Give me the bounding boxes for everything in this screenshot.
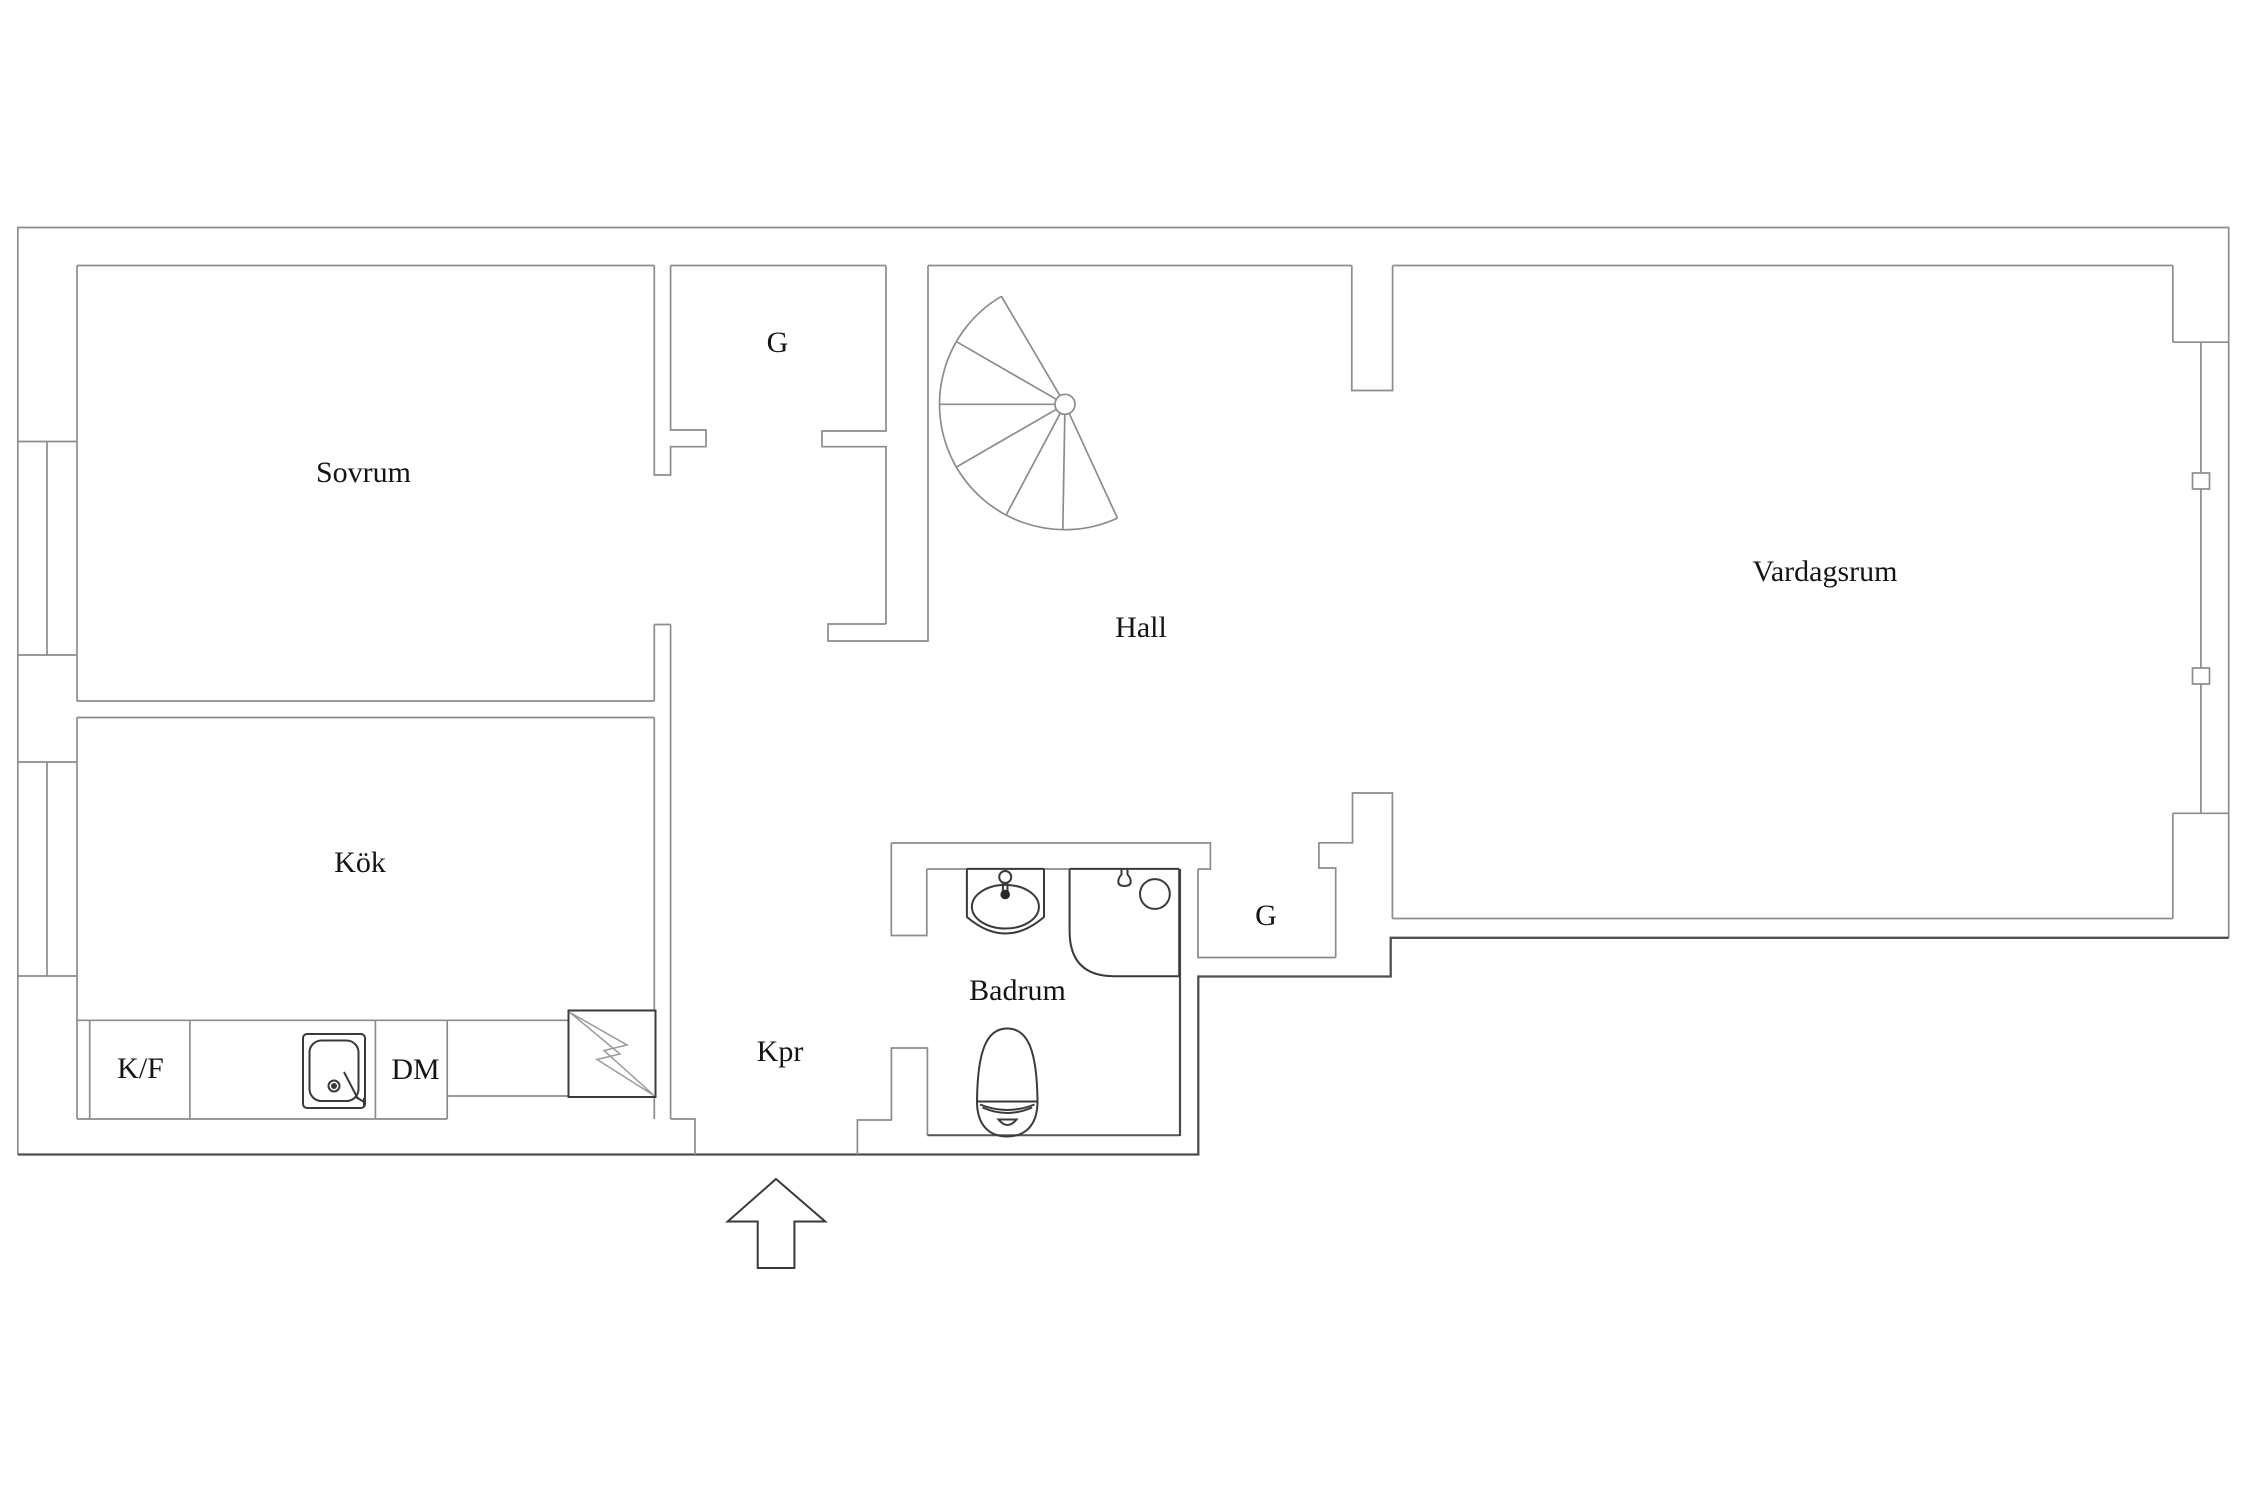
svg-text:K/F: K/F — [117, 1052, 164, 1085]
svg-text:Kök: Kök — [334, 846, 386, 879]
svg-text:Hall: Hall — [1115, 611, 1167, 644]
svg-text:DM: DM — [391, 1053, 439, 1086]
svg-text:Vardagsrum: Vardagsrum — [1753, 555, 1898, 588]
svg-text:Kpr: Kpr — [757, 1035, 804, 1068]
svg-text:Badrum: Badrum — [969, 974, 1066, 1007]
svg-text:G: G — [1255, 899, 1277, 932]
svg-text:G: G — [767, 326, 789, 359]
svg-text:Sovrum: Sovrum — [316, 456, 411, 489]
